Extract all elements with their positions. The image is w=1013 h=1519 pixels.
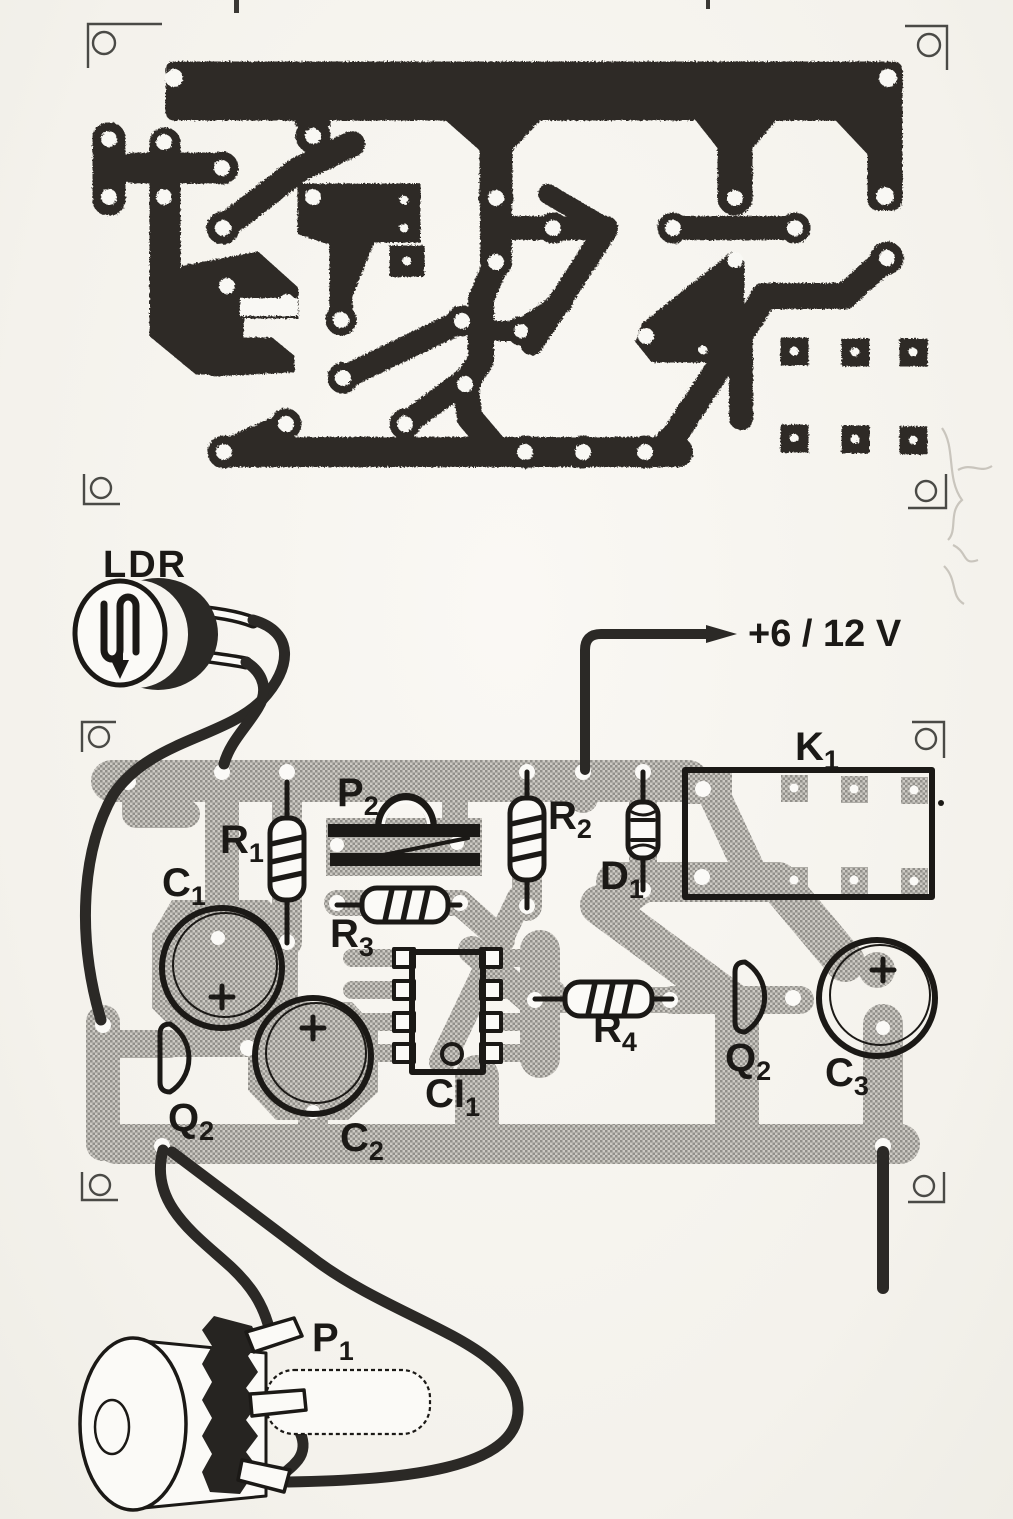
p1-lug-middle [250,1390,306,1416]
label-q2-left: Q2 [168,1096,214,1146]
ldr-component [75,578,253,690]
label-c1: C1 [162,861,206,911]
copper-side-pcb [93,62,927,468]
p1-wire-a [160,1150,268,1324]
magazine-scan-page: LDR +6 / 12 V K1 P2 R1 R2 D1 C1 R3 CI1 Q… [0,0,1013,1519]
p1-lug-top [246,1318,302,1352]
label-p1: P1 [312,1316,354,1366]
label-c2: C2 [340,1116,384,1166]
reg-mark-bottom-right [908,1172,944,1202]
copper-triangle-blob-2 [636,252,744,362]
reg-mark-top-right [905,26,947,70]
label-r1: R1 [220,818,264,868]
copper-top-bus [166,62,902,120]
reg-mark-top-left [88,24,162,68]
label-ldr: LDR [103,544,187,586]
label-supply: +6 / 12 V [748,613,902,655]
supply-wire-tip [706,625,737,643]
reg-mark-bottom-left [82,1172,118,1200]
pcb-diagram-canvas: LDR +6 / 12 V K1 P2 R1 R2 D1 C1 R3 CI1 Q… [0,0,1013,1519]
reg-mark-mid-left [82,722,116,752]
label-q2-right: Q2 [725,1036,771,1086]
reg-mark-upper-bottom-left [84,474,120,504]
reg-mark-mid-right [912,722,944,758]
reg-mark-upper-bottom-right [908,474,946,508]
label-k1: K1 [795,725,839,775]
label-c3: C3 [825,1051,869,1101]
supply-wire [585,634,706,770]
